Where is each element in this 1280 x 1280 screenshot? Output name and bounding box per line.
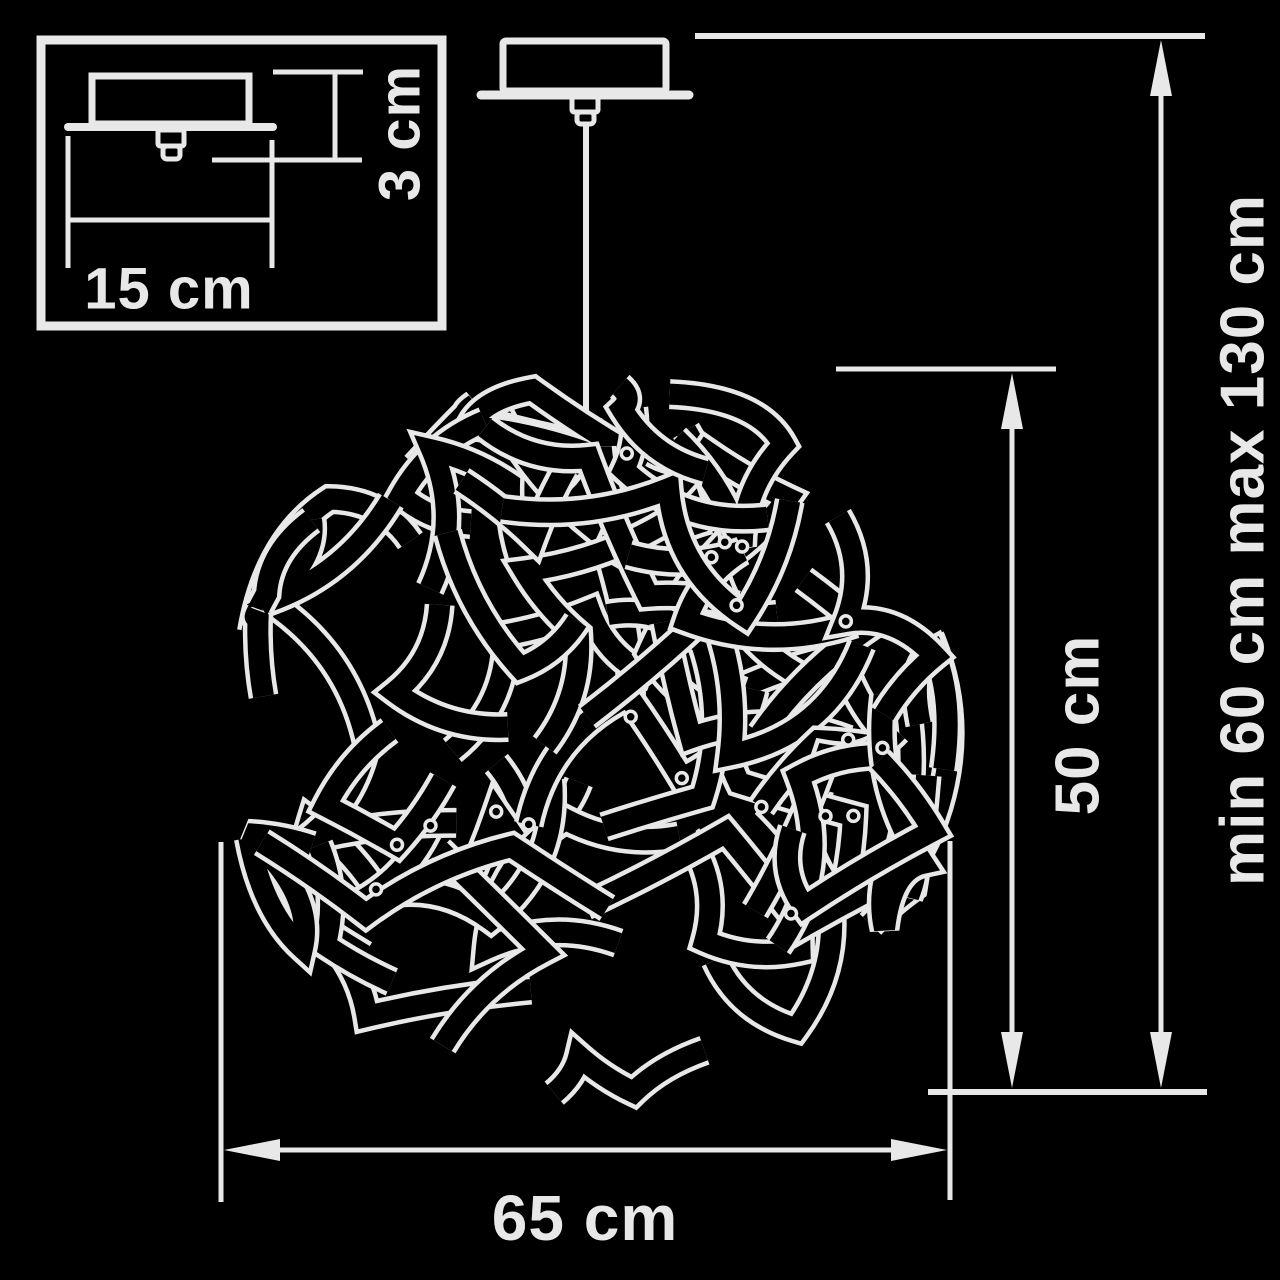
overall-arrow-up-icon [1150, 40, 1172, 96]
canopy-body [503, 41, 666, 91]
mount-width-label: 15 cm [84, 256, 253, 323]
diameter-arrow-right-icon [891, 1139, 947, 1161]
inset-socket-lower [163, 146, 180, 159]
overall-height-label: min 60 cm max 130 cm [1208, 194, 1279, 886]
shade-arrow-up-icon [1001, 373, 1023, 429]
shade-height-label: 50 cm [1043, 635, 1114, 816]
overall-arrow-down-icon [1150, 1032, 1172, 1088]
diameter-arrow-left-icon [224, 1139, 280, 1161]
diameter-label: 65 cm [492, 1181, 678, 1255]
shade-arrow-down-icon [1001, 1032, 1023, 1088]
mount-height-label: 3 cm [367, 65, 434, 201]
inset-canopy-body [92, 76, 249, 124]
chandelier-dimension-diagram: 15 cm 3 cm 50 cm min 60 cm max 130 cm 65… [0, 0, 1280, 1280]
shade-tangle [248, 386, 950, 1093]
